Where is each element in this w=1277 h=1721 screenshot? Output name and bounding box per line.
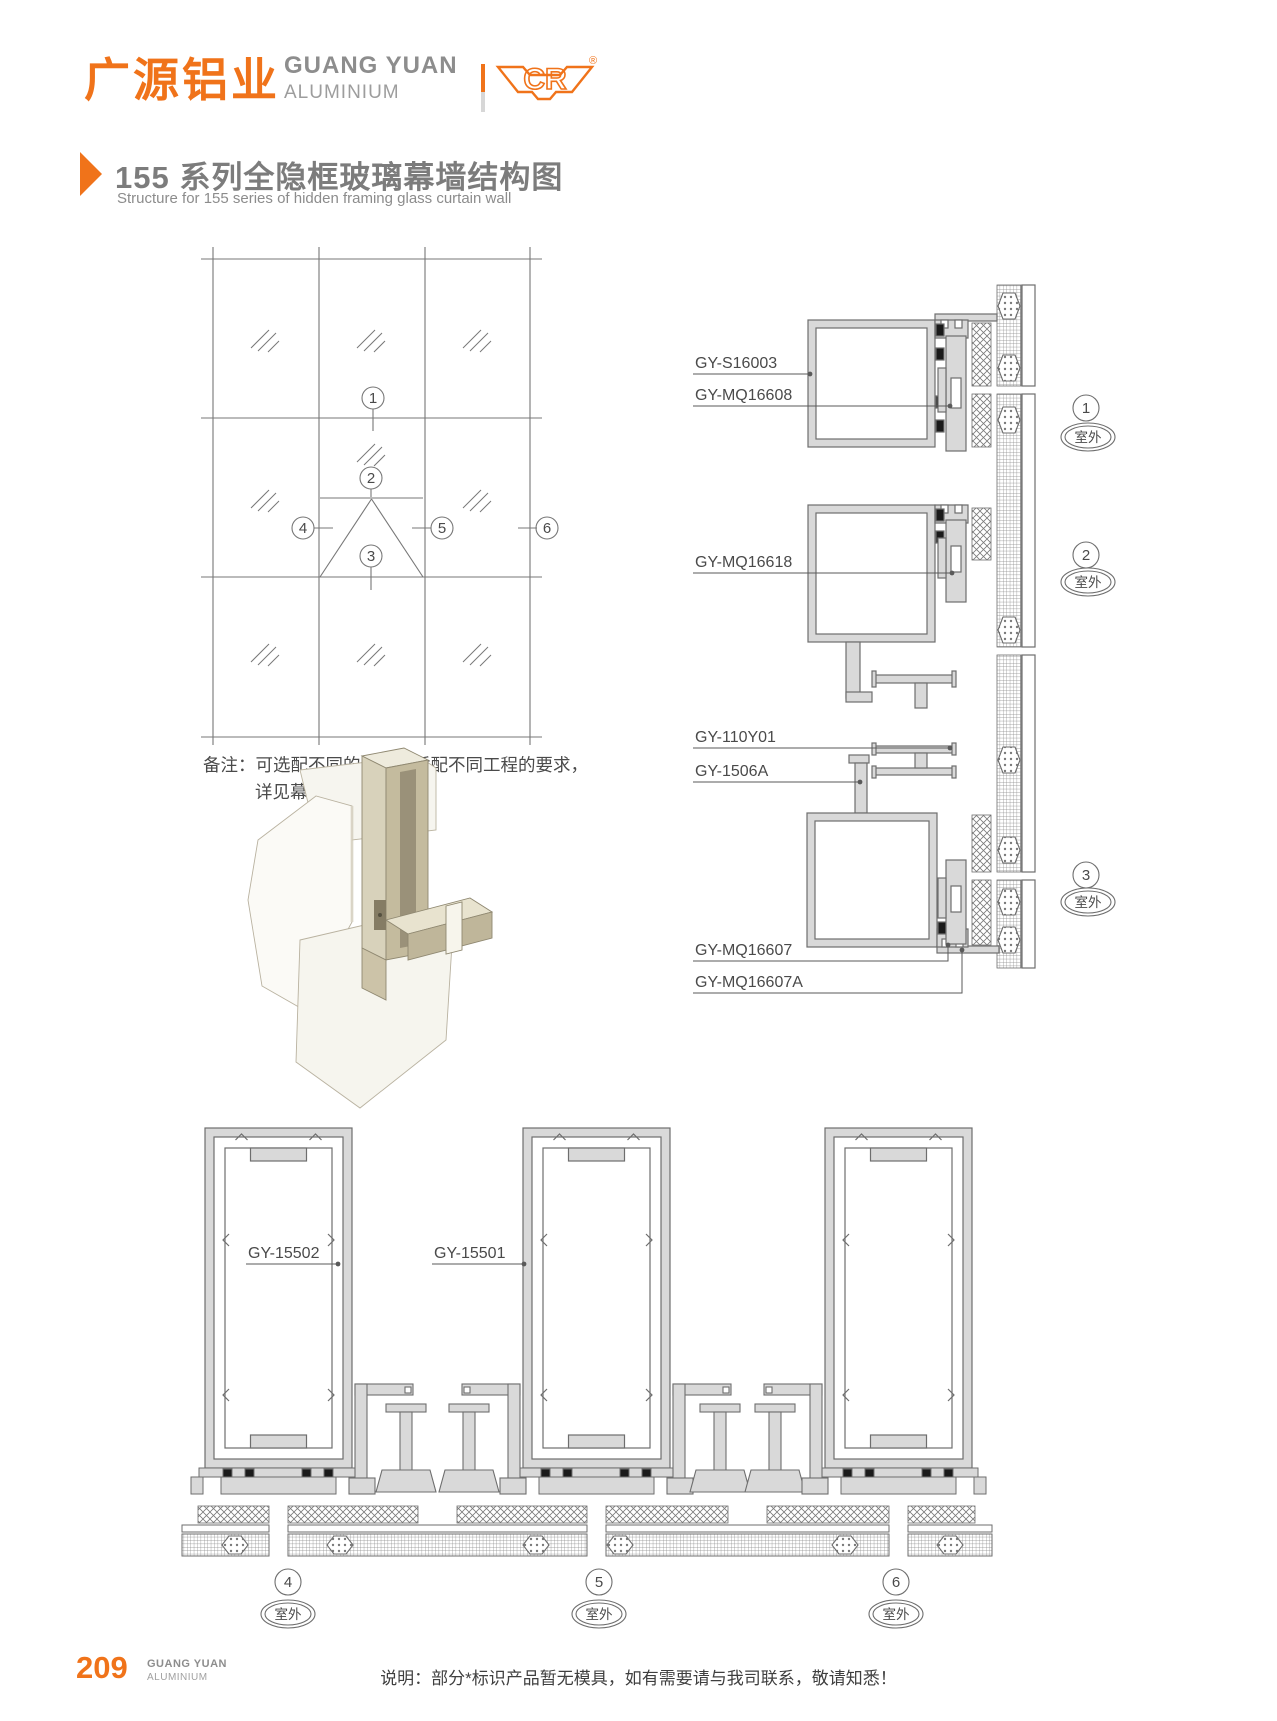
vertical-section-callouts: [1061, 395, 1115, 916]
elevation-callout-1: 1: [369, 390, 377, 407]
section-detail-3: [807, 813, 999, 953]
plan-pressure-plates: [191, 1468, 986, 1494]
section-detail-1: [808, 314, 997, 451]
section-callout-5: 5: [595, 1574, 603, 1591]
plan-callout-texts: 4 室外 5 室外 6 室外: [275, 1574, 911, 1622]
section-callout-4: 4: [284, 1574, 292, 1591]
profile-label: GY-110Y01: [695, 729, 776, 746]
section-callout-3: 3: [1082, 867, 1090, 884]
elevation-diagram: [201, 247, 558, 745]
outdoor-label-1: 室外: [1075, 429, 1103, 445]
profile-label: GY-MQ16607A: [695, 974, 803, 991]
elevation-callout-5: 5: [438, 520, 446, 537]
profile-label: GY-15502: [248, 1245, 320, 1262]
profile-label: GY-15501: [434, 1245, 506, 1262]
outdoor-label-2: 室外: [1075, 574, 1103, 590]
profile-label: GY-S16003: [695, 355, 777, 372]
elevation-callout-2: 2: [367, 470, 375, 487]
section-callout-2: 2: [1082, 547, 1090, 564]
silicone-hatch-strips: [972, 323, 991, 945]
plan-mullion-boxes: [205, 1128, 972, 1468]
plan-silicone-hatch: [198, 1506, 975, 1523]
vertical-section-labels: GY-S16003 GY-MQ16608 GY-MQ16618 GY-110Y0…: [695, 355, 803, 991]
vertical-callout-texts: 1 室外 2 室外 3 室外: [1075, 400, 1103, 910]
render-3d-isometric: [248, 748, 492, 1108]
outdoor-label-4: 室外: [275, 1606, 302, 1622]
section-detail-2: [808, 505, 968, 708]
plan-spacer-pads: [222, 1536, 963, 1554]
section-callout-1: 1: [1082, 400, 1090, 417]
spacer-pads: [998, 293, 1020, 953]
elevation-callout-6: 6: [543, 520, 551, 537]
elevation-callout-3: 3: [367, 548, 375, 565]
drawing-canvas: CR ®: [0, 0, 1277, 1721]
outdoor-label-3: 室外: [1075, 894, 1103, 910]
elevation-callout-4: 4: [299, 520, 307, 537]
stack-joint-profiles: [849, 743, 956, 813]
logo-letters: CR: [523, 63, 567, 96]
section-callout-6: 6: [892, 1574, 900, 1591]
catalog-page: 广源铝业 GUANG YUAN ALUMINIUM 155 系列全隐框玻璃幕墙结…: [0, 0, 1277, 1721]
registered-mark: ®: [589, 55, 597, 67]
profile-label: GY-1506A: [695, 763, 769, 780]
brand-logo-cr-icon: CR: [498, 63, 592, 99]
plan-section-details: [182, 1128, 992, 1556]
glass-outer-panes: [1022, 285, 1035, 968]
outdoor-label-5: 室外: [586, 1606, 614, 1622]
plan-glass-band: [182, 1525, 992, 1556]
profile-label: GY-MQ16608: [695, 387, 792, 404]
profile-label: GY-MQ16607: [695, 942, 792, 959]
outdoor-label-6: 室外: [883, 1606, 911, 1622]
profile-label: GY-MQ16618: [695, 554, 792, 571]
